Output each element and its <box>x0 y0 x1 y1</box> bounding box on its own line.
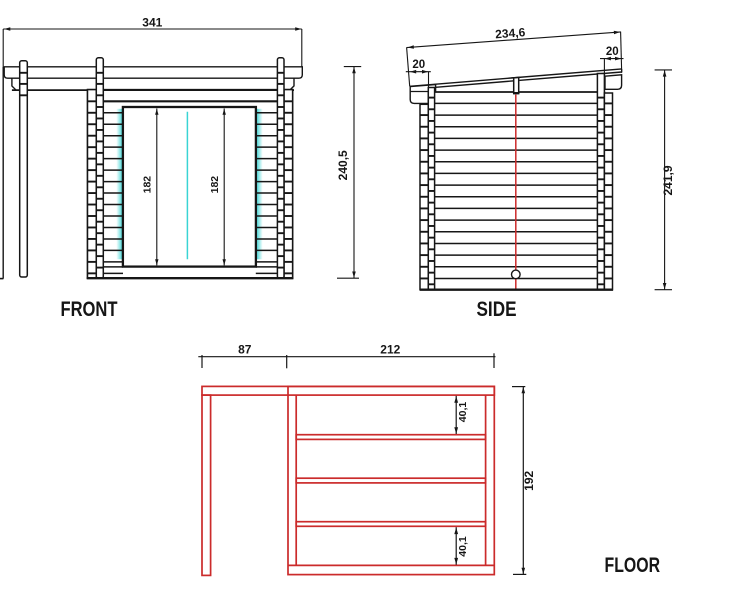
svg-text:40,1: 40,1 <box>457 536 469 557</box>
svg-text:20: 20 <box>606 46 619 58</box>
svg-text:182: 182 <box>209 176 221 194</box>
svg-text:234,6: 234,6 <box>495 25 526 41</box>
svg-text:212: 212 <box>380 343 400 357</box>
svg-text:341: 341 <box>142 15 162 29</box>
svg-text:20: 20 <box>412 59 425 71</box>
svg-text:192: 192 <box>522 470 536 490</box>
svg-text:FRONT: FRONT <box>61 297 118 321</box>
svg-text:SIDE: SIDE <box>477 297 517 321</box>
svg-text:40,1: 40,1 <box>457 402 469 423</box>
svg-text:87: 87 <box>238 343 252 357</box>
svg-text:240,5: 240,5 <box>336 150 350 180</box>
svg-text:241,9: 241,9 <box>661 165 675 195</box>
svg-text:FLOOR: FLOOR <box>605 553 661 577</box>
svg-text:182: 182 <box>142 176 154 194</box>
